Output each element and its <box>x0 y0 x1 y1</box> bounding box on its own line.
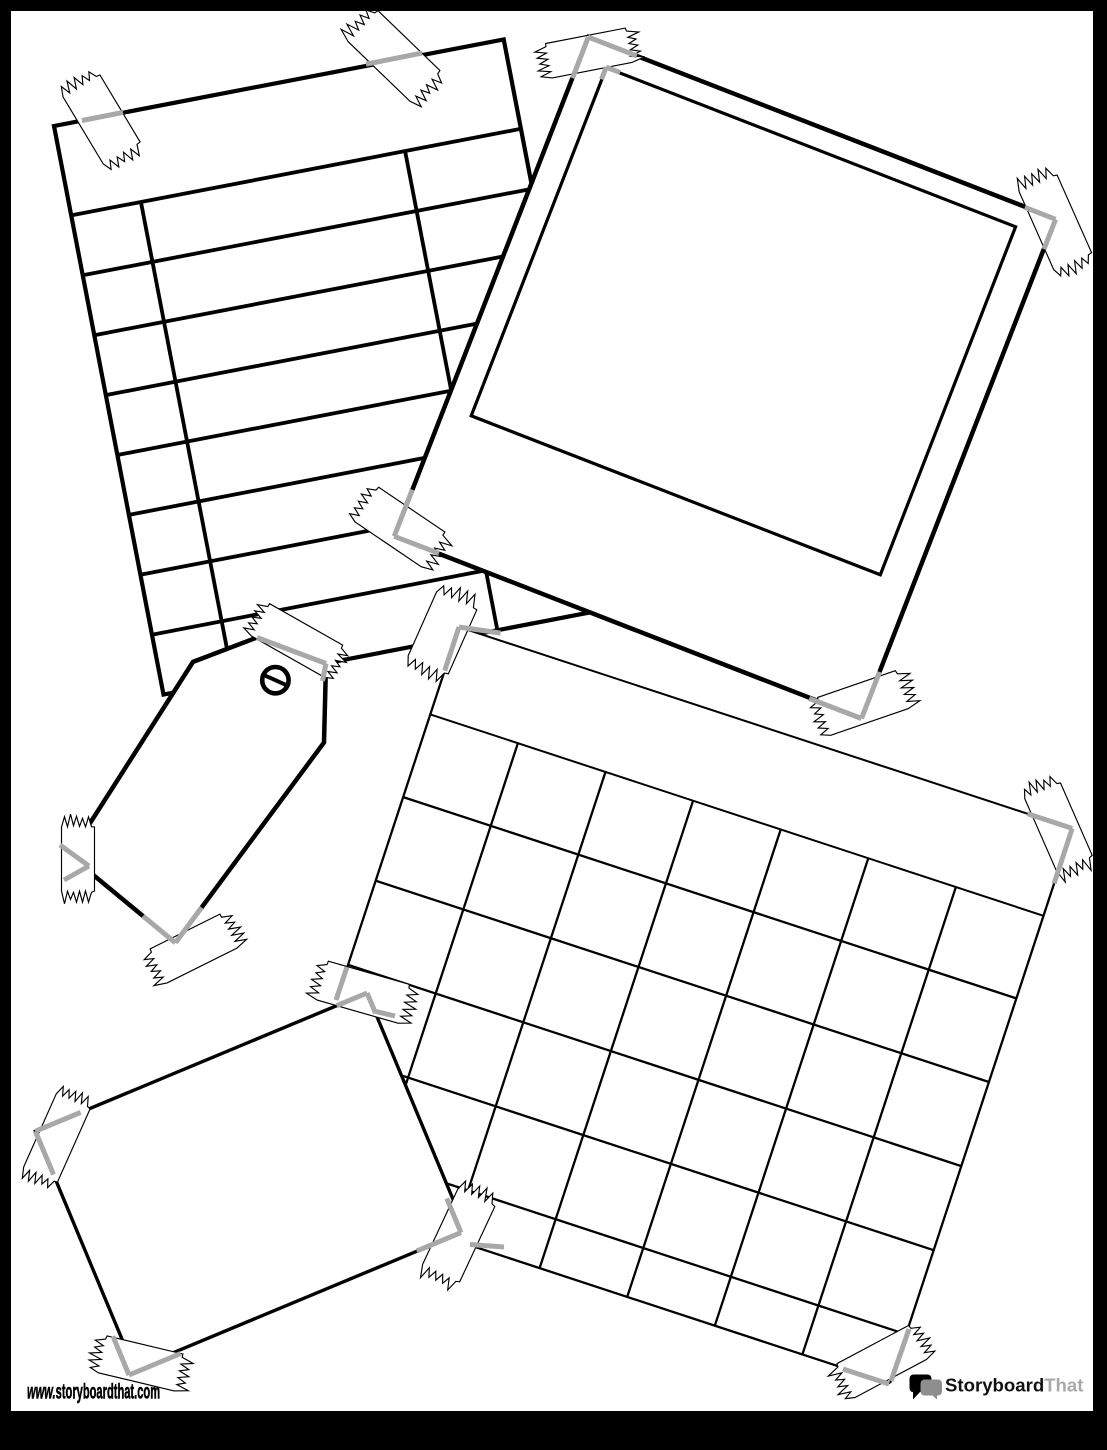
svg-text:StoryboardThat: StoryboardThat <box>945 1375 1083 1396</box>
svg-text:www.storyboardthat.com: www.storyboardthat.com <box>27 1380 160 1404</box>
